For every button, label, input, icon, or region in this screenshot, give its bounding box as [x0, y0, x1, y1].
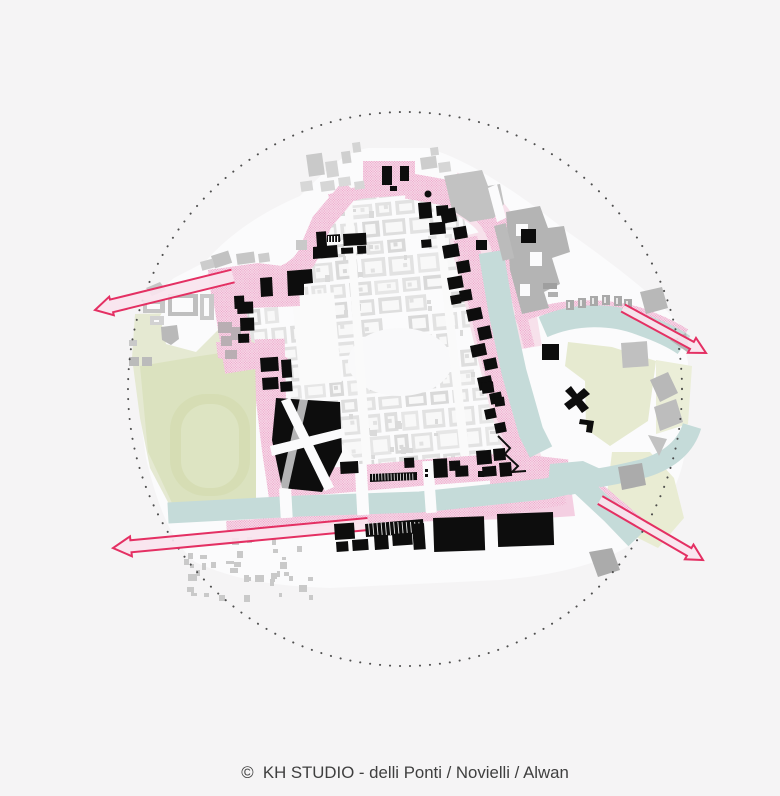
svg-text:© KH STUDIO - delli Ponti / N: © KH STUDIO - delli Ponti / Novielli / A…: [241, 763, 569, 782]
